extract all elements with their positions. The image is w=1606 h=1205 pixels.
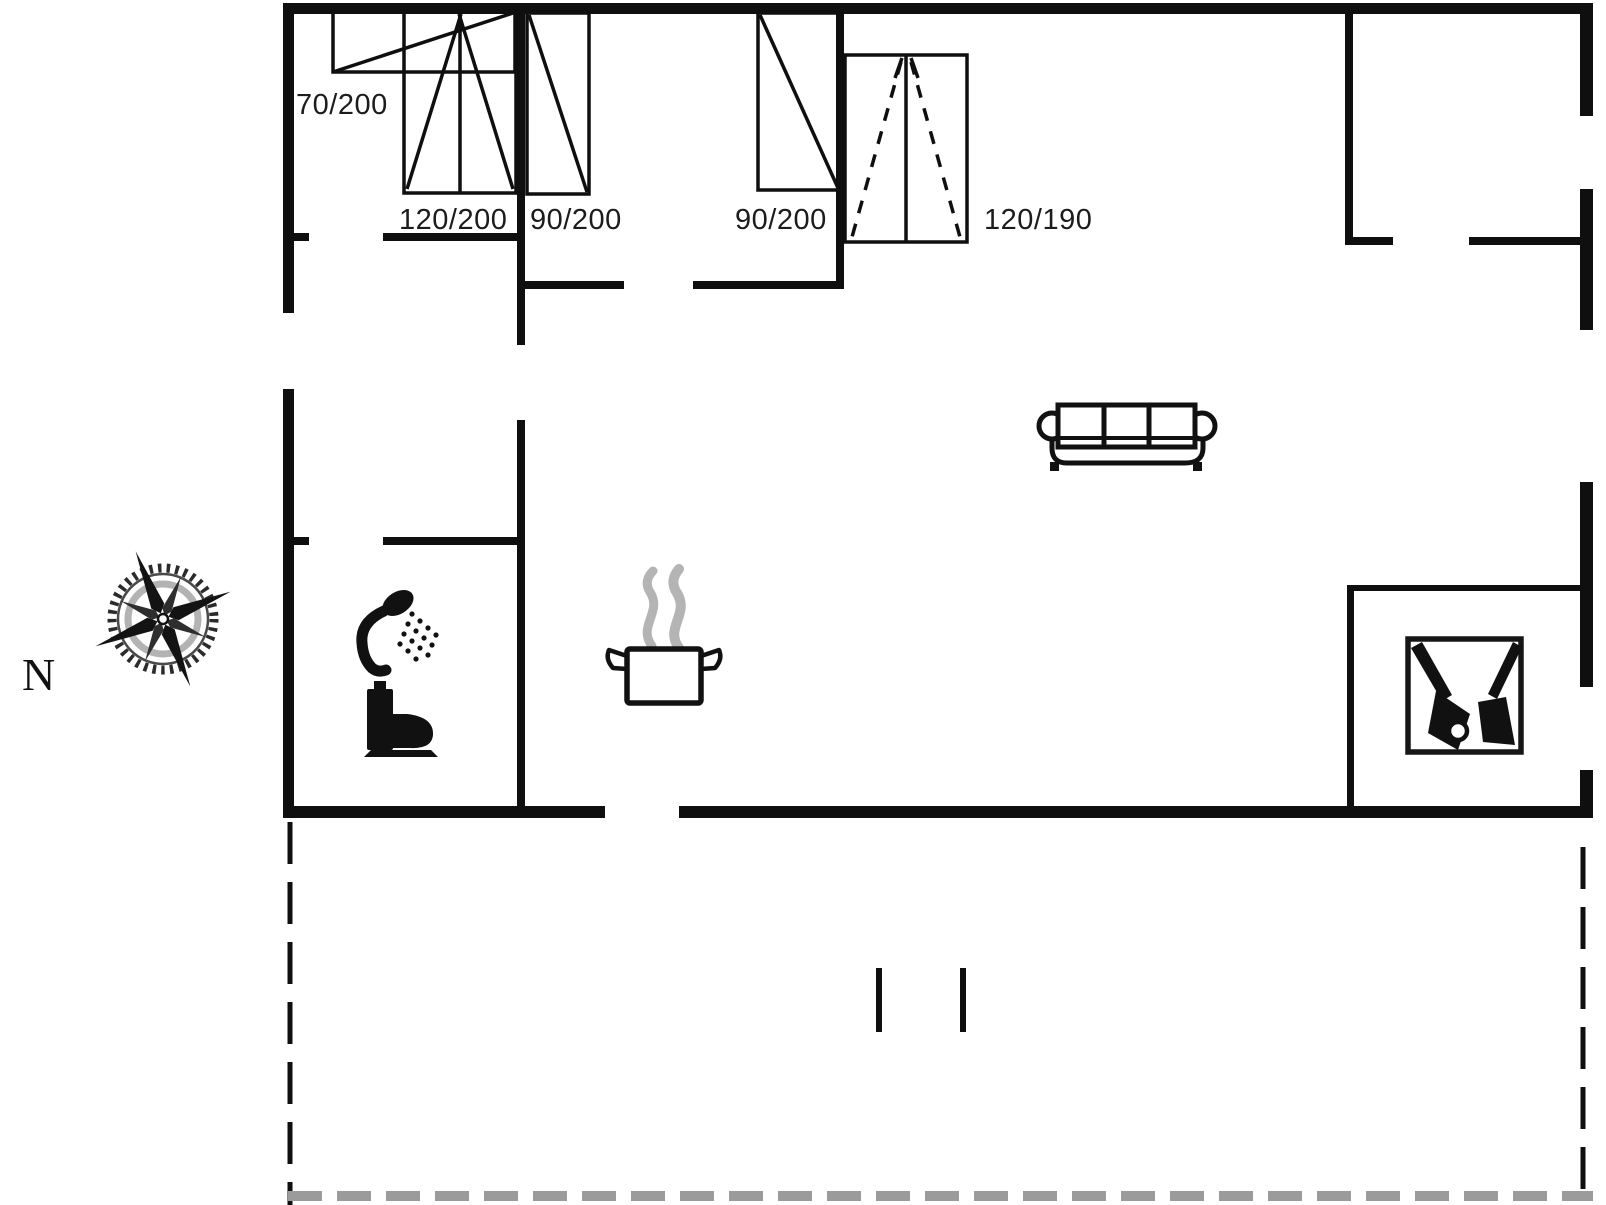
wall-stove-niche-north <box>1347 585 1580 591</box>
wall-tick-lower <box>294 537 309 545</box>
interior-walls <box>294 10 1593 812</box>
shower-spray <box>397 611 438 661</box>
wall-right-1 <box>1580 3 1593 116</box>
label-opening-70x200: 70/200 <box>296 89 388 121</box>
floor-plan-drawing: 70/200 120/200 90/200 90/200 120/190 <box>0 0 1606 1205</box>
wall-corner-room-west <box>1345 10 1353 245</box>
toilet-icon <box>364 681 438 757</box>
wall-bathroom-east-upper <box>517 10 525 345</box>
label-window-120x200: 120/200 <box>399 204 507 236</box>
wood-stove-icon <box>1408 639 1522 752</box>
steam-wisp-left <box>647 571 654 646</box>
wall-corner-room-south-a <box>1345 237 1393 245</box>
label-door-90x200-right: 90/200 <box>735 204 827 236</box>
wall-corner-room-south-b <box>1469 237 1593 245</box>
north-label: N <box>22 649 55 700</box>
exterior-walls <box>283 3 1593 818</box>
label-double-door-120x190: 120/190 <box>984 204 1092 236</box>
window-120x200-symbol <box>404 11 516 193</box>
wall-right-2 <box>1580 189 1593 330</box>
steam-wisp-right <box>673 569 680 648</box>
door-90x200-left-symbol <box>527 13 589 194</box>
door-90x200-right-symbol <box>758 13 840 190</box>
wall-tick-upper <box>294 233 309 241</box>
wall-corridor-east <box>693 281 843 289</box>
wall-left-upper <box>283 3 294 313</box>
floor-plan-canvas: 70/200 120/200 90/200 90/200 120/190 <box>0 0 1606 1205</box>
cooking-pot-icon <box>608 569 721 703</box>
wall-bottom-right <box>679 806 1593 818</box>
wall-left-lower <box>283 389 294 817</box>
wall-bathroom-east-lower <box>517 420 525 810</box>
opening-70x200-symbol <box>333 11 515 72</box>
double-door-120x190-symbol <box>845 55 967 242</box>
wall-bathroom-north <box>383 537 525 545</box>
compass-rose-icon: N <box>22 524 258 714</box>
wall-right-3 <box>1580 482 1593 687</box>
shower-icon <box>362 585 439 671</box>
sofa-icon <box>1039 405 1215 471</box>
terrace-boundary <box>288 822 1593 1205</box>
label-door-90x200-left: 90/200 <box>530 204 622 236</box>
wall-stove-niche-west <box>1347 585 1354 812</box>
wall-corridor-west <box>517 281 624 289</box>
wall-bottom-left <box>283 806 605 818</box>
